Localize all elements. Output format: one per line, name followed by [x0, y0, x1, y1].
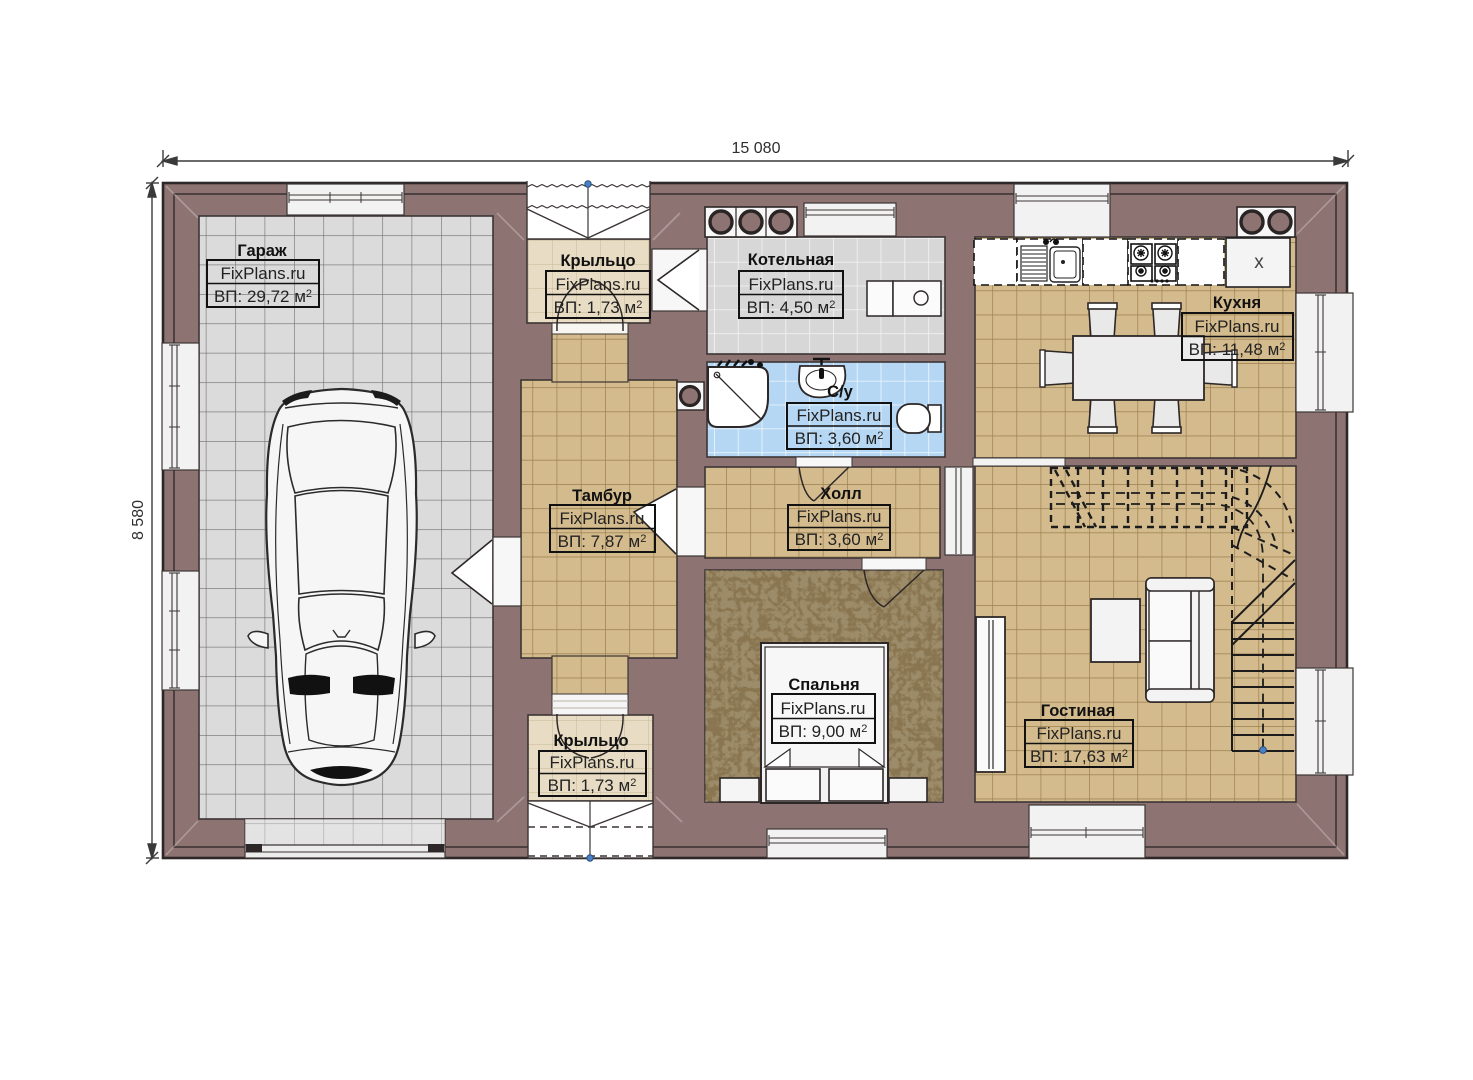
- svg-text:FixPlans.ru: FixPlans.ru: [796, 406, 881, 425]
- svg-text:Холл: Холл: [820, 485, 861, 503]
- svg-text:ВП: 11,48 м2: ВП: 11,48 м2: [1189, 340, 1286, 359]
- svg-text:15 080: 15 080: [732, 140, 781, 157]
- svg-text:ВП: 4,50 м2: ВП: 4,50 м2: [747, 298, 836, 317]
- svg-text:ВП: 17,63 м2: ВП: 17,63 м2: [1030, 747, 1128, 766]
- svg-text:FixPlans.ru: FixPlans.ru: [220, 264, 305, 283]
- svg-text:Котельная: Котельная: [748, 251, 834, 269]
- svg-text:FixPlans.ru: FixPlans.ru: [1194, 317, 1279, 336]
- svg-text:FixPlans.ru: FixPlans.ru: [780, 699, 865, 718]
- svg-text:FixPlans.ru: FixPlans.ru: [559, 509, 644, 528]
- svg-text:8 580: 8 580: [130, 500, 147, 540]
- svg-text:Крыльцо: Крыльцо: [560, 252, 635, 270]
- svg-text:FixPlans.ru: FixPlans.ru: [796, 507, 881, 526]
- svg-text:FixPlans.ru: FixPlans.ru: [549, 753, 634, 772]
- svg-text:ВП: 1,73 м2: ВП: 1,73 м2: [554, 298, 643, 317]
- svg-text:С/у: С/у: [827, 383, 854, 401]
- svg-text:x: x: [1254, 252, 1264, 273]
- svg-text:ВП: 3,60 м2: ВП: 3,60 м2: [795, 429, 884, 448]
- svg-text:Гараж: Гараж: [237, 242, 287, 260]
- svg-text:ВП: 29,72 м2: ВП: 29,72 м2: [214, 287, 312, 306]
- svg-text:FixPlans.ru: FixPlans.ru: [555, 275, 640, 294]
- svg-text:Кухня: Кухня: [1213, 294, 1261, 312]
- svg-text:Крыльцо: Крыльцо: [553, 732, 628, 750]
- svg-text:ВП: 9,00 м2: ВП: 9,00 м2: [779, 722, 868, 741]
- svg-text:ВП: 1,73 м2: ВП: 1,73 м2: [548, 776, 637, 795]
- svg-text:FixPlans.ru: FixPlans.ru: [1036, 724, 1121, 743]
- svg-text:Спальня: Спальня: [788, 676, 859, 694]
- svg-text:ВП: 7,87 м2: ВП: 7,87 м2: [558, 532, 647, 551]
- svg-text:ВП: 3,60 м2: ВП: 3,60 м2: [795, 530, 884, 549]
- svg-text:Тамбур: Тамбур: [572, 487, 632, 505]
- svg-text:FixPlans.ru: FixPlans.ru: [748, 275, 833, 294]
- svg-text:Гостиная: Гостиная: [1041, 702, 1116, 720]
